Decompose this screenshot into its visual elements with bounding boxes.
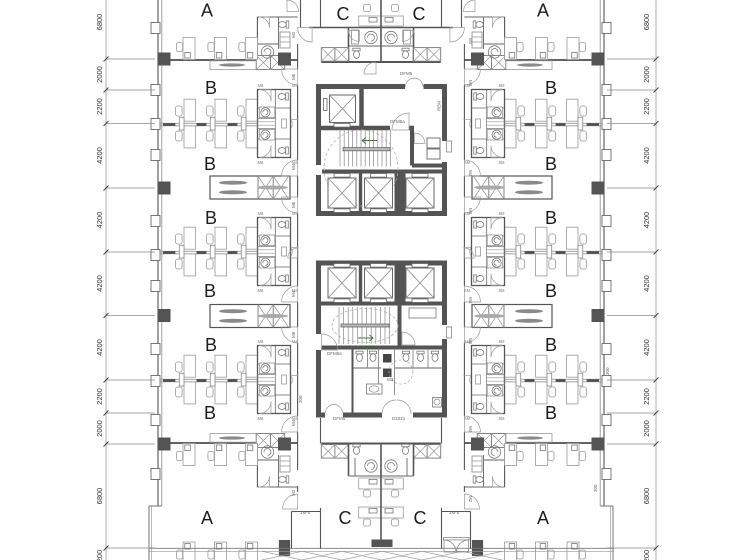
svg-text:4200: 4200 (642, 275, 651, 292)
svg-text:M4: M4 (291, 419, 296, 426)
svg-text:M6: M6 (468, 338, 473, 345)
svg-text:M4: M4 (291, 163, 296, 170)
svg-text:M2: M2 (468, 38, 473, 45)
svg-text:B: B (545, 208, 557, 228)
svg-text:4200: 4200 (95, 212, 104, 229)
svg-text:M6: M6 (468, 208, 473, 215)
svg-text:2000: 2000 (642, 420, 651, 437)
svg-text:M4: M4 (468, 297, 473, 304)
svg-text:4200: 4200 (642, 212, 651, 229)
svg-text:M2: M2 (291, 489, 296, 496)
svg-text:6800: 6800 (642, 14, 651, 31)
svg-text:REM: REM (437, 101, 442, 111)
svg-text:D1021: D1021 (392, 416, 406, 421)
svg-text:DFM5: DFM5 (400, 71, 413, 76)
svg-text:6800: 6800 (95, 14, 104, 31)
svg-text:A: A (537, 508, 549, 528)
svg-text:B: B (205, 208, 217, 228)
svg-text:300: 300 (298, 395, 303, 403)
svg-text:B: B (545, 281, 557, 301)
svg-text:6800: 6800 (95, 488, 104, 505)
svg-text:B: B (545, 403, 557, 423)
svg-text:2200: 2200 (642, 388, 651, 405)
svg-text:M4: M4 (468, 426, 473, 433)
svg-text:B: B (204, 403, 216, 423)
svg-text:DFM5: DFM5 (333, 416, 346, 421)
svg-text:DFM5a: DFM5a (327, 351, 342, 356)
svg-text:2000: 2000 (642, 66, 651, 83)
svg-text:M4: M4 (291, 290, 296, 297)
svg-text:C: C (339, 508, 352, 528)
svg-text:M6: M6 (291, 331, 296, 338)
svg-text:B: B (204, 154, 216, 174)
svg-text:200: 200 (95, 550, 104, 560)
svg-text:B: B (545, 335, 557, 355)
svg-text:A: A (201, 1, 213, 21)
svg-text:B: B (545, 78, 557, 98)
svg-text:C: C (337, 4, 350, 24)
svg-text:2000: 2000 (95, 66, 104, 83)
svg-text:6800: 6800 (642, 488, 651, 505)
svg-text:M3: M3 (387, 377, 394, 382)
svg-text:B: B (205, 335, 217, 355)
svg-text:M2: M2 (468, 496, 473, 503)
svg-text:M6: M6 (291, 73, 296, 80)
svg-text:4200: 4200 (95, 339, 104, 356)
svg-text:4200: 4200 (95, 147, 104, 164)
svg-text:M6: M6 (468, 80, 473, 87)
svg-text:4200: 4200 (95, 275, 104, 292)
svg-text:B: B (545, 154, 557, 174)
svg-text:4200: 4200 (642, 147, 651, 164)
svg-text:200: 200 (642, 550, 651, 560)
svg-text:1M-5: 1M-5 (449, 510, 460, 515)
svg-text:C: C (413, 4, 426, 24)
svg-text:M2: M2 (291, 31, 296, 38)
svg-text:A: A (537, 1, 549, 21)
svg-text:M6: M6 (291, 201, 296, 208)
svg-text:A: A (201, 508, 213, 528)
svg-text:2200: 2200 (642, 98, 651, 115)
svg-text:1M-5: 1M-5 (300, 510, 311, 515)
svg-text:2200: 2200 (95, 388, 104, 405)
svg-text:M4: M4 (468, 170, 473, 177)
svg-text:300: 300 (605, 367, 610, 375)
svg-text:DFM5a: DFM5a (390, 119, 405, 124)
svg-text:2200: 2200 (95, 98, 104, 115)
svg-text:2000: 2000 (95, 420, 104, 437)
svg-text:B: B (204, 281, 216, 301)
svg-text:C: C (414, 508, 427, 528)
svg-text:300: 300 (593, 484, 598, 492)
svg-text:B: B (205, 78, 217, 98)
svg-text:4200: 4200 (642, 339, 651, 356)
